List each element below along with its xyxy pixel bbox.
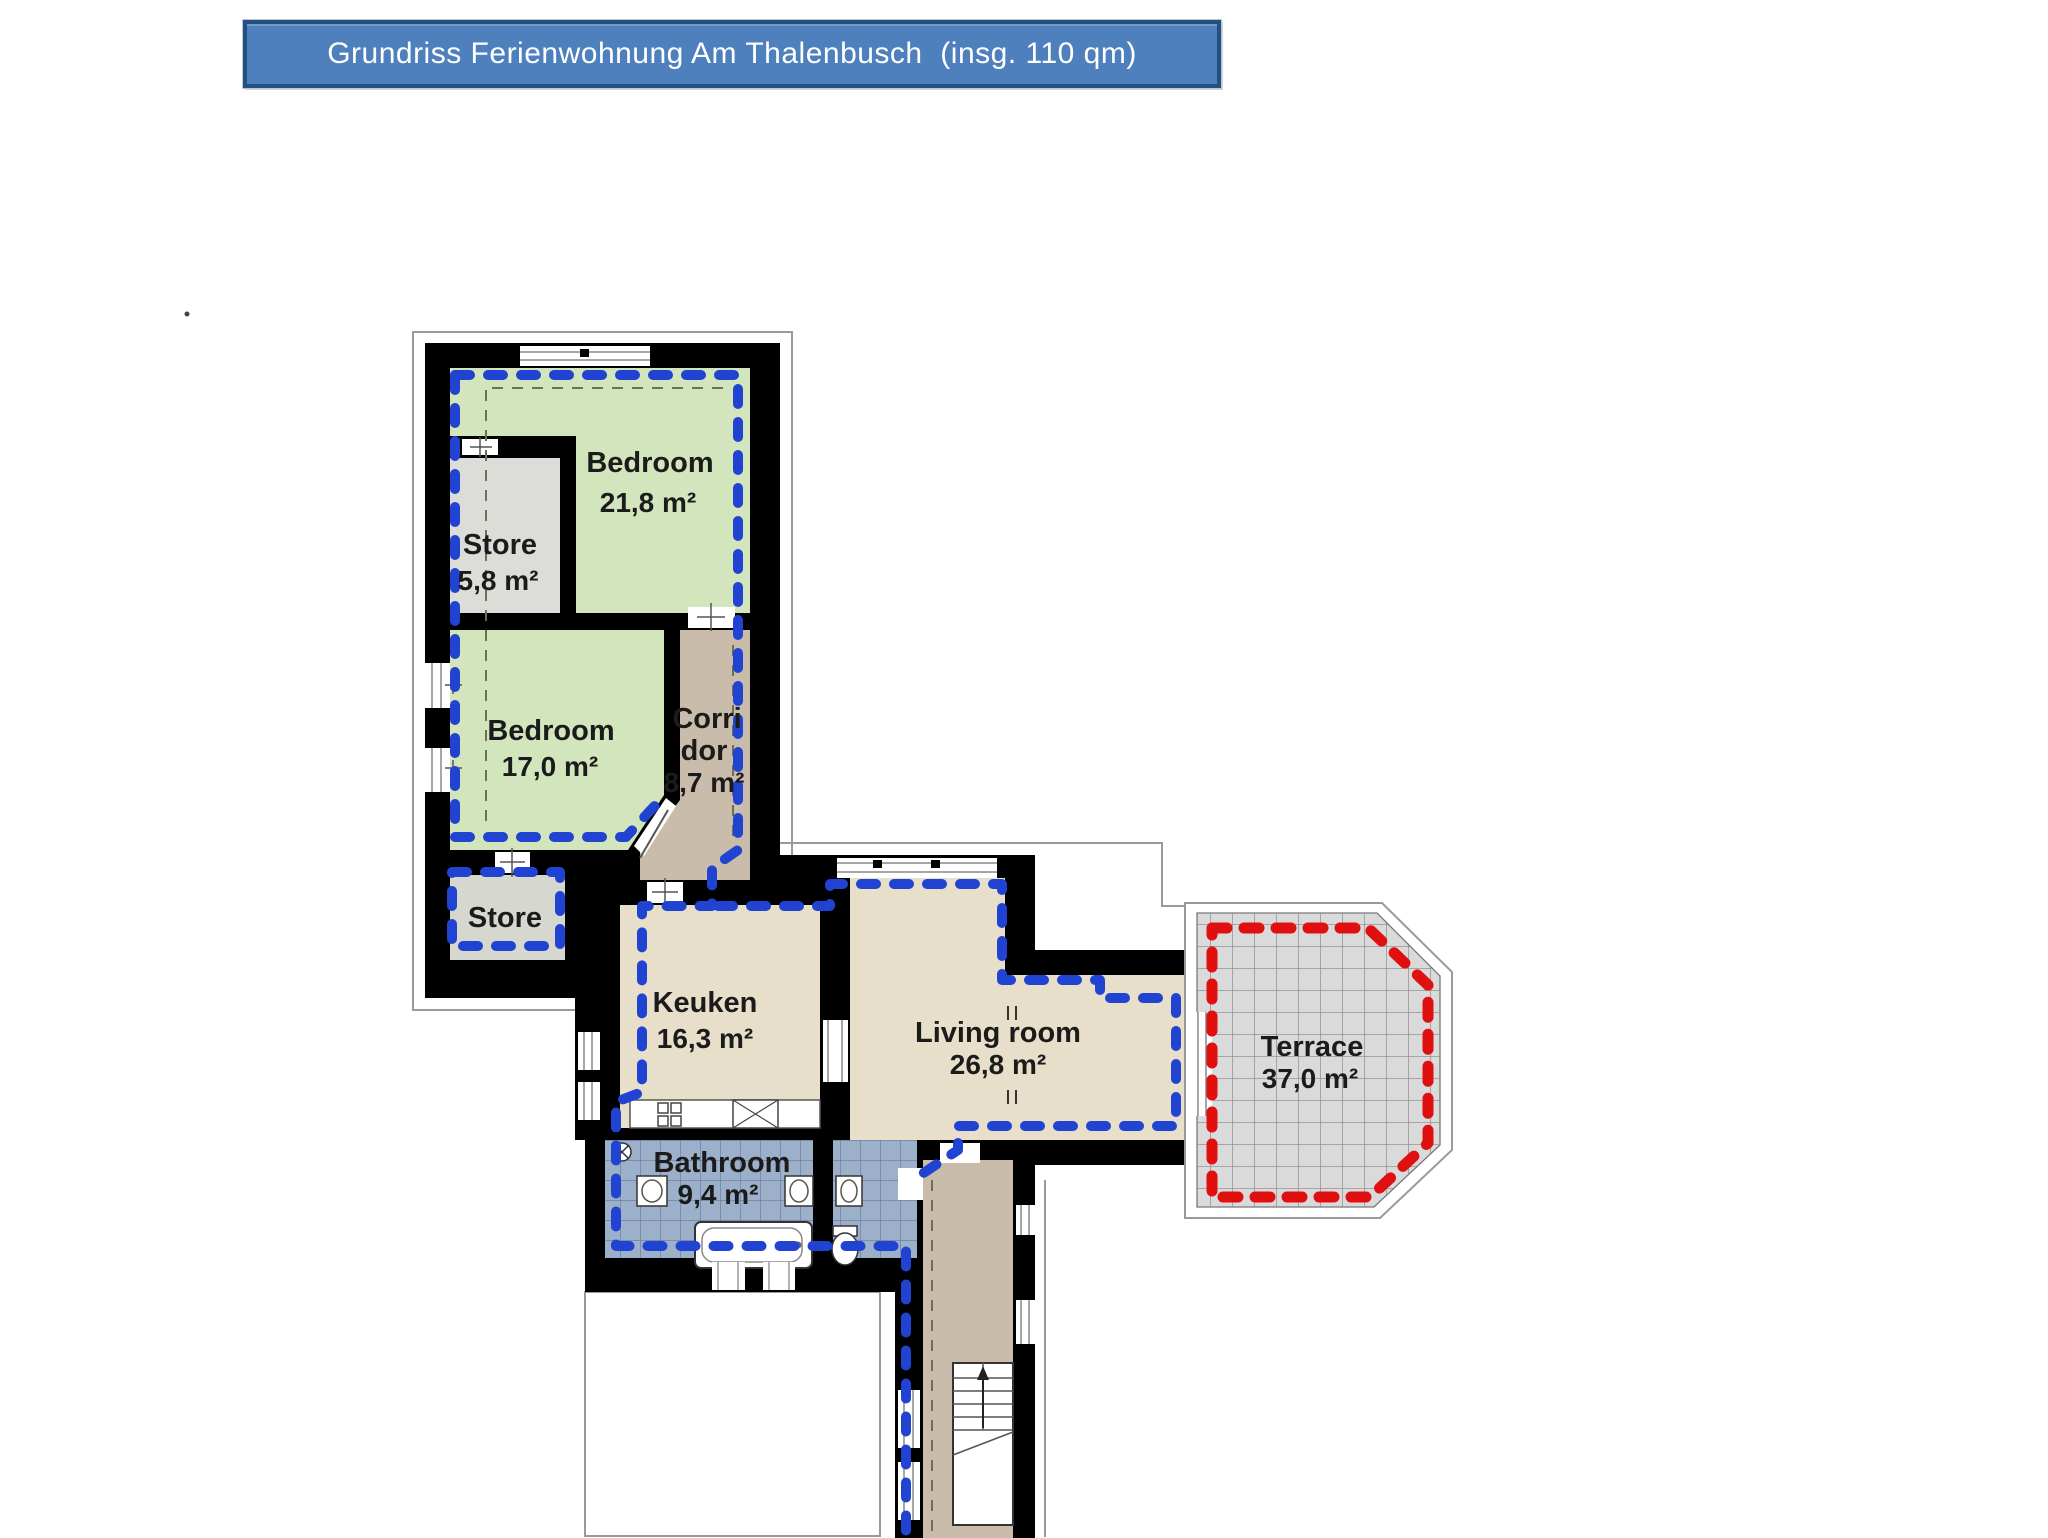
label-corridor-area: 8,7 m² <box>664 767 745 798</box>
label-terrace: Terrace <box>1261 1031 1364 1063</box>
label-store-2: Store <box>468 902 542 934</box>
label-bathroom-area: 9,4 m² <box>678 1179 759 1210</box>
label-terrace-area: 37,0 m² <box>1262 1063 1359 1094</box>
kitchen-sink-icon <box>733 1100 778 1128</box>
kitchen-living-door <box>823 1020 848 1082</box>
label-bedroom-1-area: 21,8 m² <box>600 487 697 518</box>
label-bathroom: Bathroom <box>654 1147 791 1179</box>
label-living-room-area: 26,8 m² <box>950 1049 1047 1080</box>
label-kitchen: Keuken <box>653 987 758 1019</box>
store-1-divider-wall <box>560 436 576 613</box>
staircase <box>953 1363 1013 1525</box>
label-corridor-line1: Corri <box>672 703 741 735</box>
washbasin-icon <box>785 1176 813 1206</box>
floor-plan-page: Grundriss Ferienwohnung Am Thalenbusch (… <box>0 0 2048 1538</box>
floor-plan-drawing: Bedroom 21,8 m² Store 5,8 m² Bedroom 17,… <box>0 0 2048 1538</box>
label-bedroom-2-area: 17,0 m² <box>502 751 599 782</box>
label-store-1-area: 5,8 m² <box>458 565 539 596</box>
label-bedroom-2: Bedroom <box>487 715 614 747</box>
washbasin-icon <box>836 1176 862 1206</box>
label-kitchen-area: 16,3 m² <box>657 1023 754 1054</box>
label-store-1: Store <box>463 529 537 561</box>
washbasin-icon <box>637 1176 667 1206</box>
label-bedroom-1: Bedroom <box>586 447 713 479</box>
label-living-room: Living room <box>915 1017 1081 1049</box>
label-corridor-line2: dor <box>681 735 728 767</box>
page-dot <box>185 312 190 317</box>
neighbor-area-outline <box>585 1292 880 1536</box>
